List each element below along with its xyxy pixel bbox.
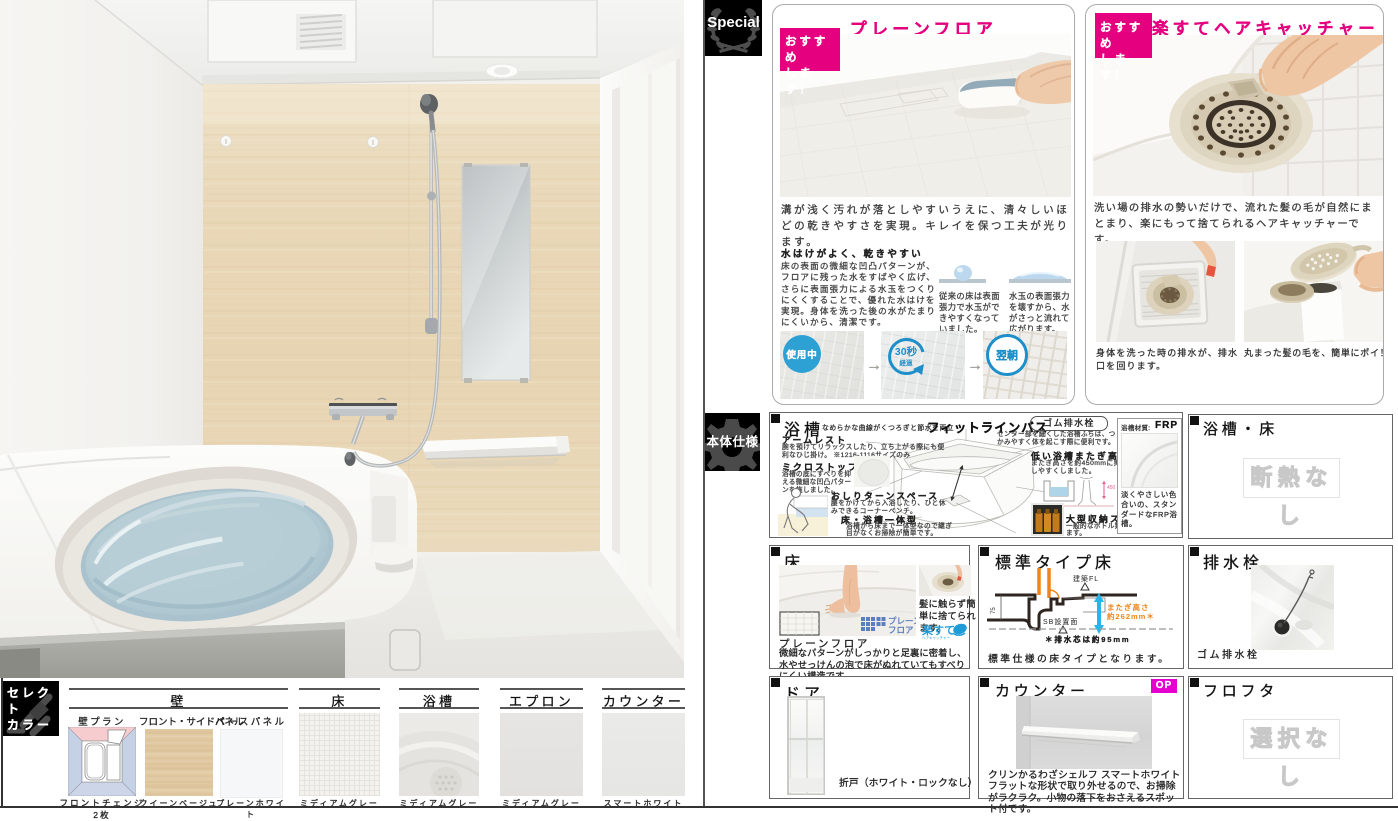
svg-text:本体仕様: 本体仕様 [706, 434, 758, 449]
svg-text:フロア: フロア [888, 625, 914, 635]
svg-text:SB設置面: SB設置面 [1043, 617, 1078, 626]
svg-text:450: 450 [1107, 485, 1116, 491]
svg-text:経過: 経過 [900, 358, 914, 367]
svg-text:建築FL: 建築FL [1073, 574, 1099, 583]
svg-text:Special: Special [707, 14, 760, 31]
svg-text:ヘアキャッチャー: ヘアキャッチャー [922, 635, 950, 640]
svg-text:またぎ高さ: またぎ高さ [1107, 602, 1150, 612]
svg-text:30秒: 30秒 [895, 345, 918, 358]
svg-text:楽すて: 楽すて [922, 623, 955, 637]
svg-text:75: 75 [991, 607, 997, 614]
svg-text:約262mm＊: 約262mm＊ [1107, 611, 1155, 621]
